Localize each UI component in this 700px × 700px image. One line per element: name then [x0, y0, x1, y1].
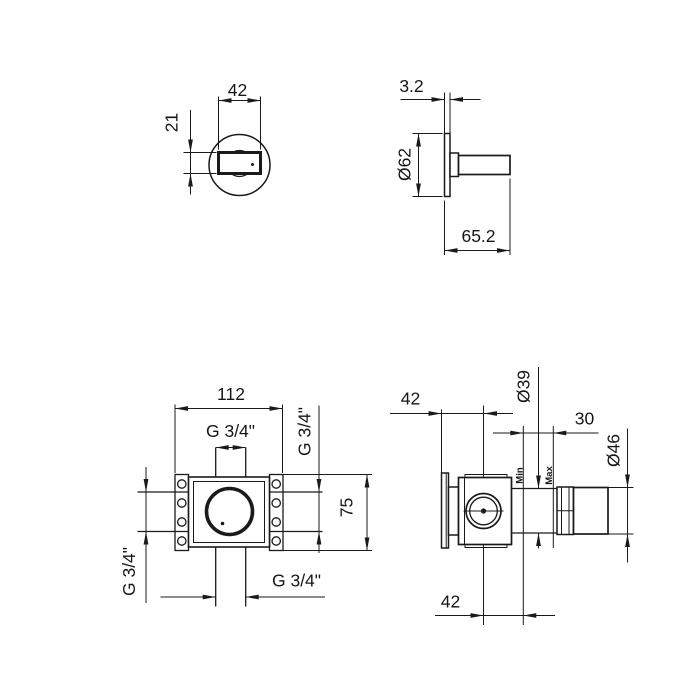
body-tab-top	[465, 475, 507, 478]
dim-label-thread-right: G 3/4"	[295, 407, 315, 456]
body-tab-bottom	[465, 545, 507, 548]
dim-thread-left: G 3/4"	[119, 467, 146, 603]
dim-label-plate-diameter: Ø62	[395, 148, 415, 181]
handle-bar-side	[459, 156, 511, 175]
wall-plate-side	[445, 134, 451, 197]
dim-label-adjustment-range: 30	[575, 409, 595, 429]
dim-label-cartridge-diameter: Ø39	[514, 370, 534, 403]
min-label: Min	[514, 467, 525, 484]
dim-label-center-to-wall: 42	[441, 592, 460, 612]
handle-neck-side	[450, 153, 459, 177]
clip-strip-left	[175, 475, 189, 551]
dim-label-handle-width: 42	[228, 80, 247, 100]
bore-index-dot	[221, 522, 225, 526]
clip-strip-right	[270, 475, 284, 551]
dim-label-thread-bottom: G 3/4"	[272, 571, 321, 591]
handle-index-dot	[251, 163, 254, 166]
dim-plate-diameter: Ø62	[395, 134, 443, 197]
wall-plate-edge	[442, 473, 449, 548]
dim-depth-to-center: 42	[390, 389, 513, 473]
handle-bar	[219, 153, 261, 174]
dim-projection: 65.2	[445, 179, 511, 256]
dim-label-thread-left: G 3/4"	[119, 547, 139, 596]
body-neck-left	[449, 487, 459, 535]
dim-center-to-wall: 42	[435, 592, 555, 616]
dim-plate-thickness: 3.2	[399, 76, 480, 134]
body-front-view: 112 G 3/4" G 3/4" 75 G 3/4" G 3/4"	[119, 384, 372, 607]
neck-tube-lines	[512, 489, 558, 534]
dim-label-box-width: 112	[217, 384, 245, 404]
trim-cap	[574, 488, 609, 535]
dim-thread-bottom: G 3/4"	[161, 571, 326, 598]
dim-adjustment-range: 30	[493, 409, 599, 434]
handle-side-view: 3.2 Ø62 65.2	[395, 76, 510, 255]
dim-thread-top: G 3/4"	[206, 421, 255, 448]
dim-handle-height: 21	[162, 110, 217, 195]
body-side-view: 42 Ø39 30 Ø46 Min Max 42	[390, 367, 634, 625]
dim-cartridge-diameter: Ø39	[514, 367, 539, 549]
dim-label-projection: 65.2	[461, 226, 495, 246]
dim-label-thread-top: G 3/4"	[206, 421, 255, 441]
technical-drawing: 42 21 3.2 Ø62 65.2	[0, 0, 700, 700]
dim-label-plate-thickness: 3.2	[399, 76, 423, 96]
dim-box-height: 75	[283, 475, 372, 551]
dim-label-box-height: 75	[337, 498, 357, 517]
max-label: Max	[544, 466, 555, 485]
drawing-canvas: 42 21 3.2 Ø62 65.2	[0, 0, 700, 700]
cartridge-center-dot	[481, 508, 486, 513]
dim-label-depth-to-center: 42	[401, 389, 420, 409]
dim-label-cap-diameter: Ø46	[604, 434, 624, 467]
dim-label-handle-height: 21	[162, 113, 182, 132]
handle-front-view: 42 21	[162, 80, 270, 196]
